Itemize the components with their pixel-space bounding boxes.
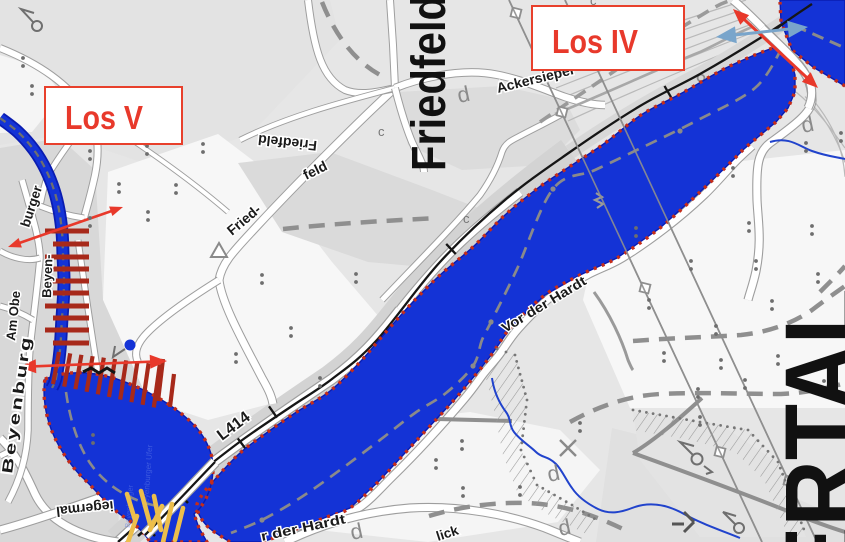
svg-text:c: c (463, 211, 470, 226)
svg-text:c: c (378, 124, 385, 139)
svg-text:Los IV: Los IV (552, 23, 638, 60)
svg-text:ERTAL: ERTAL (764, 288, 845, 542)
svg-text:Los V: Los V (65, 99, 143, 136)
svg-text:Friedfeld: Friedfeld (403, 0, 456, 171)
svg-text:Beyen-: Beyen- (39, 254, 56, 298)
